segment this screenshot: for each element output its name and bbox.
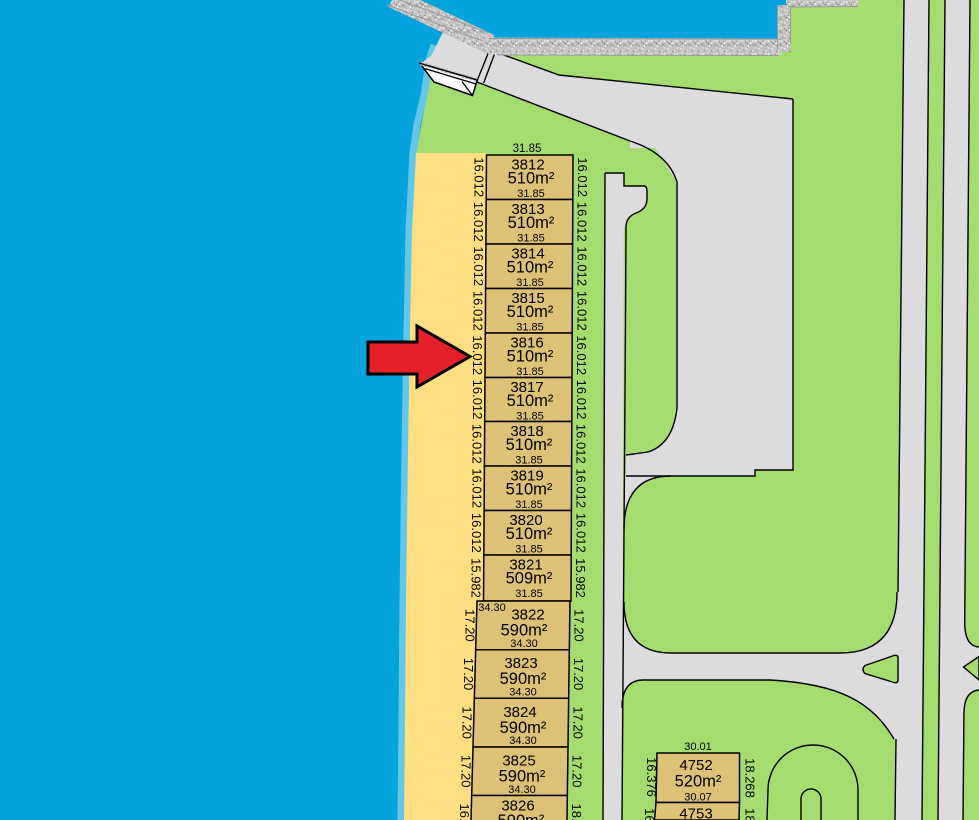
svg-text:30.07: 30.07 xyxy=(684,792,712,804)
svg-text:510m²: 510m² xyxy=(507,392,554,410)
svg-text:510m²: 510m² xyxy=(507,348,554,366)
svg-text:590m²: 590m² xyxy=(501,622,548,640)
svg-text:510m²: 510m² xyxy=(508,170,555,188)
svg-text:16.012: 16.012 xyxy=(574,468,589,508)
svg-text:17.20: 17.20 xyxy=(462,609,477,642)
svg-text:16.012: 16.012 xyxy=(575,202,590,242)
svg-text:31.85: 31.85 xyxy=(517,233,545,245)
svg-text:16.376: 16.376 xyxy=(644,757,659,797)
svg-text:16.012: 16.012 xyxy=(470,380,485,420)
svg-text:16.012: 16.012 xyxy=(470,424,485,464)
svg-text:31.85: 31.85 xyxy=(515,588,543,600)
svg-text:590m²: 590m² xyxy=(498,812,545,820)
svg-text:31.85: 31.85 xyxy=(516,411,544,423)
svg-text:17.20: 17.20 xyxy=(461,658,476,691)
svg-text:34.30: 34.30 xyxy=(509,687,537,699)
svg-text:16.012: 16.012 xyxy=(575,246,590,286)
svg-text:31.85: 31.85 xyxy=(515,499,543,511)
svg-text:17.20: 17.20 xyxy=(570,755,585,788)
svg-text:18.268: 18.268 xyxy=(743,808,758,820)
svg-text:510m²: 510m² xyxy=(506,436,553,454)
svg-text:510m²: 510m² xyxy=(506,525,553,543)
svg-text:17.20: 17.20 xyxy=(571,658,586,691)
svg-text:34.30: 34.30 xyxy=(478,602,506,614)
svg-text:18.268: 18.268 xyxy=(743,758,758,798)
svg-text:31.85: 31.85 xyxy=(515,544,543,556)
svg-text:16.012: 16.012 xyxy=(471,202,486,242)
svg-text:16.012: 16.012 xyxy=(574,291,589,331)
svg-text:510m²: 510m² xyxy=(507,303,554,321)
svg-text:31.85: 31.85 xyxy=(516,277,544,289)
svg-text:16.012: 16.012 xyxy=(471,157,486,197)
svg-text:16.012: 16.012 xyxy=(574,424,589,464)
svg-text:34.30: 34.30 xyxy=(508,784,536,796)
svg-text:31.85: 31.85 xyxy=(516,366,544,378)
svg-text:510m²: 510m² xyxy=(507,259,554,277)
svg-text:30.01: 30.01 xyxy=(684,741,712,753)
svg-text:520m²: 520m² xyxy=(675,773,722,791)
svg-text:34.30: 34.30 xyxy=(510,638,538,650)
svg-text:16.012: 16.012 xyxy=(469,513,484,553)
svg-text:31.85: 31.85 xyxy=(516,322,544,334)
svg-text:16.012: 16.012 xyxy=(470,335,485,375)
svg-text:16.012: 16.012 xyxy=(471,246,486,286)
svg-text:16.26: 16.26 xyxy=(457,804,472,820)
svg-text:16.012: 16.012 xyxy=(574,335,589,375)
svg-text:17.20: 17.20 xyxy=(458,755,473,788)
svg-text:16.012: 16.012 xyxy=(471,291,486,331)
svg-text:4753: 4753 xyxy=(679,806,712,820)
svg-text:16.012: 16.012 xyxy=(573,513,588,553)
svg-text:31.85: 31.85 xyxy=(513,143,542,155)
svg-text:590m²: 590m² xyxy=(499,768,546,786)
svg-text:31.85: 31.85 xyxy=(515,455,543,467)
svg-text:509m²: 509m² xyxy=(506,570,553,588)
svg-text:590m²: 590m² xyxy=(500,670,547,688)
svg-text:17.20: 17.20 xyxy=(460,706,475,739)
svg-text:4752: 4752 xyxy=(679,757,712,774)
svg-text:16.376: 16.376 xyxy=(642,808,657,820)
svg-text:16.012: 16.012 xyxy=(574,380,589,420)
svg-text:15.982: 15.982 xyxy=(573,558,588,598)
svg-text:590m²: 590m² xyxy=(500,719,547,737)
svg-text:18.26: 18.26 xyxy=(569,804,584,820)
svg-text:510m²: 510m² xyxy=(508,214,555,232)
svg-text:15.982: 15.982 xyxy=(469,558,484,598)
svg-text:34.30: 34.30 xyxy=(509,735,537,747)
svg-text:17.20: 17.20 xyxy=(570,706,585,739)
svg-text:510m²: 510m² xyxy=(506,481,553,499)
svg-text:16.012: 16.012 xyxy=(575,157,590,197)
svg-text:31.85: 31.85 xyxy=(517,188,545,200)
svg-text:16.012: 16.012 xyxy=(469,468,484,508)
svg-text:17.20: 17.20 xyxy=(572,609,587,642)
